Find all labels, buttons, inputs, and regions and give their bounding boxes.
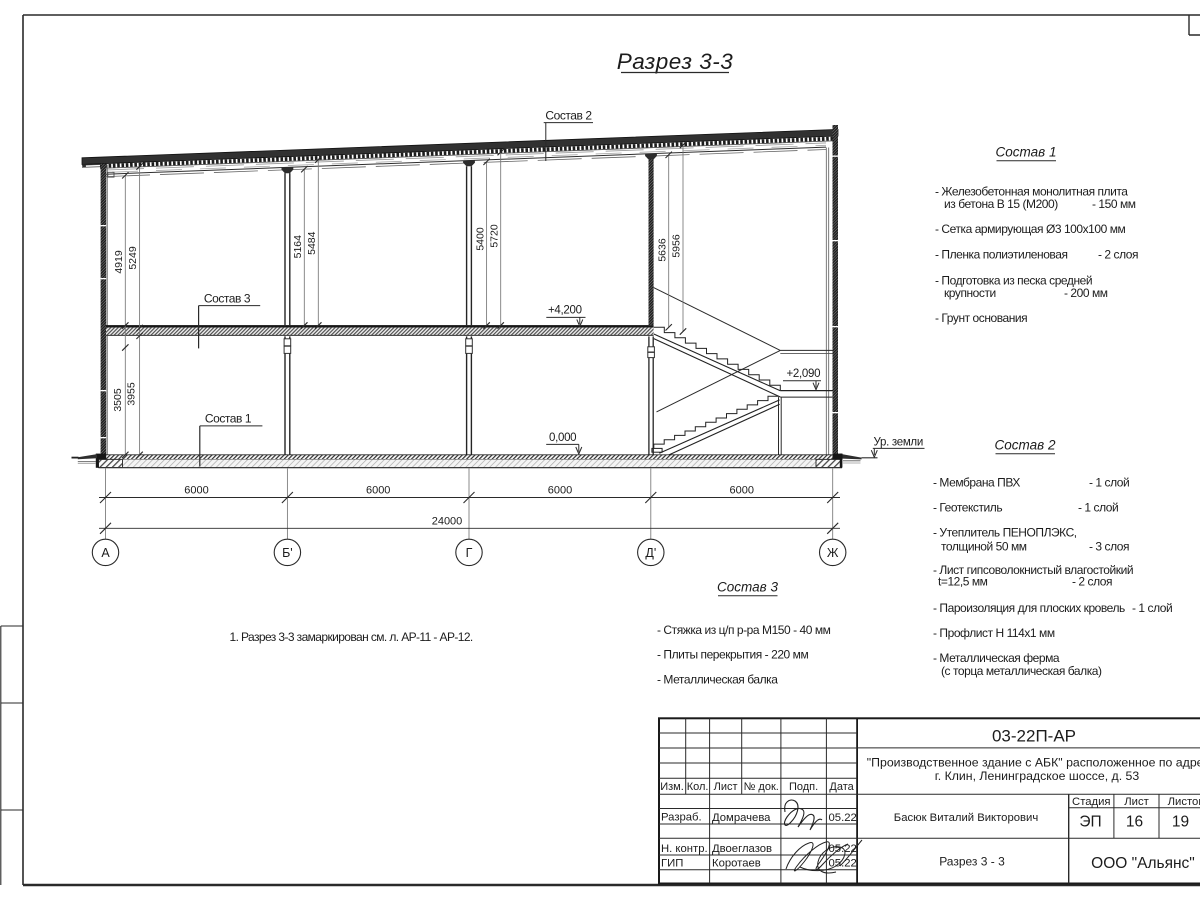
svg-text:5720: 5720: [489, 224, 501, 248]
svg-text:24000: 24000: [432, 515, 463, 527]
svg-text:4919: 4919: [113, 250, 125, 274]
svg-text:5249: 5249: [127, 246, 139, 270]
svg-text:г. Клин, Ленинградское шоссе,: г. Клин, Ленинградское шоссе, д. 53: [935, 769, 1140, 783]
svg-text:Д': Д': [645, 546, 656, 560]
svg-text:3955: 3955: [126, 382, 138, 406]
svg-text:6000: 6000: [548, 485, 572, 497]
svg-text:(с торца металлическая балка): (с торца металлическая балка): [941, 664, 1102, 678]
svg-text:Дата: Дата: [829, 781, 854, 793]
svg-text:Коротаев: Коротаев: [712, 858, 761, 870]
svg-text:- 1 слой: - 1 слой: [1089, 476, 1129, 490]
svg-text:- Утеплитель ПЕНОПЛЭКС,: - Утеплитель ПЕНОПЛЭКС,: [933, 526, 1077, 540]
svg-text:5400: 5400: [475, 227, 487, 251]
svg-text:03-22П-АР: 03-22П-АР: [992, 727, 1076, 746]
svg-text:- Профлист Н 114х1 мм: - Профлист Н 114х1 мм: [933, 626, 1055, 640]
svg-text:- Мембрана ПВХ: - Мембрана ПВХ: [933, 476, 1020, 490]
svg-text:- Плиты перекрытия - 220 мм: - Плиты перекрытия - 220 мм: [657, 648, 808, 662]
svg-text:- 1 слой: - 1 слой: [1078, 501, 1118, 515]
svg-text:Лист: Лист: [714, 781, 738, 793]
svg-text:Состав 3: Состав 3: [717, 580, 778, 595]
svg-text:- 3 слоя: - 3 слоя: [1089, 540, 1129, 554]
svg-text:6000: 6000: [730, 485, 754, 497]
svg-text:Домрачева: Домрачева: [712, 812, 771, 824]
svg-text:- Пароизоляция для плоских кро: - Пароизоляция для плоских кровель: [933, 601, 1125, 615]
svg-text:ООО "Альянс": ООО "Альянс": [1091, 855, 1195, 872]
svg-text:№ док.: № док.: [744, 781, 779, 793]
svg-text:- Пленка полиэтиленовая: - Пленка полиэтиленовая: [935, 248, 1068, 262]
svg-text:6000: 6000: [366, 485, 390, 497]
svg-text:16: 16: [1126, 814, 1143, 831]
svg-text:Н. контр.: Н. контр.: [661, 843, 708, 855]
svg-text:"Производственное здание с АБК: "Производственное здание с АБК" располож…: [867, 756, 1200, 770]
svg-text:- Грунт основания: - Грунт основания: [935, 311, 1027, 325]
svg-text:- Металлическая ферма: - Металлическая ферма: [933, 651, 1060, 665]
svg-text:Подп.: Подп.: [789, 781, 818, 793]
svg-text:Состав 2: Состав 2: [545, 109, 592, 123]
svg-text:- Стяжка из ц/п р-ра М150 - 40: - Стяжка из ц/п р-ра М150 - 40 мм: [657, 623, 831, 637]
svg-text:Басюк Виталий Викторович: Басюк Виталий Викторович: [894, 812, 1039, 824]
svg-text:- 200 мм: - 200 мм: [1064, 286, 1108, 300]
svg-text:+2,090: +2,090: [787, 368, 821, 380]
svg-text:5636: 5636: [657, 238, 669, 262]
svg-text:- Металлическая балка: - Металлическая балка: [657, 673, 778, 687]
svg-text:0,000: 0,000: [549, 432, 576, 444]
svg-text:5164: 5164: [292, 235, 304, 259]
svg-text:ГИП: ГИП: [661, 858, 683, 870]
svg-text:крупности: крупности: [944, 286, 996, 300]
svg-text:Состав 1: Состав 1: [205, 411, 252, 425]
svg-text:Ур. земли: Ур. земли: [874, 436, 923, 448]
svg-text:05.22: 05.22: [829, 843, 857, 855]
svg-text:Состав 3: Состав 3: [204, 291, 251, 305]
svg-text:- 2 слоя: - 2 слоя: [1098, 248, 1138, 262]
svg-text:Разрез 3 - 3: Разрез 3 - 3: [939, 855, 1005, 869]
svg-text:Кол.: Кол.: [687, 781, 709, 793]
svg-text:Состав 2: Состав 2: [995, 438, 1056, 453]
svg-text:Двоеглазов: Двоеглазов: [712, 843, 772, 855]
svg-text:Лист: Лист: [1124, 796, 1149, 808]
svg-text:Разрез 3-3: Разрез 3-3: [617, 49, 734, 74]
svg-text:5484: 5484: [306, 231, 318, 255]
svg-text:Листов: Листов: [1168, 796, 1200, 808]
svg-text:А: А: [101, 546, 110, 560]
svg-text:из бетона В 15 (М200): из бетона В 15 (М200): [944, 197, 1058, 211]
svg-text:- 150 мм: - 150 мм: [1092, 197, 1136, 211]
svg-text:1. Разрез 3-3 замаркирован см.: 1. Разрез 3-3 замаркирован см. л. АР-11 …: [230, 630, 473, 644]
svg-text:Б': Б': [282, 546, 293, 560]
svg-text:ЭП: ЭП: [1079, 814, 1101, 831]
svg-text:3505: 3505: [112, 388, 124, 412]
svg-text:- Сетка армирующая Ø3 100х100: - Сетка армирующая Ø3 100х100 мм: [935, 222, 1126, 236]
svg-text:- 2 слоя: - 2 слоя: [1072, 575, 1112, 589]
svg-text:- 1 слой: - 1 слой: [1132, 601, 1172, 615]
svg-text:6000: 6000: [184, 485, 208, 497]
svg-text:толщиной 50 мм: толщиной 50 мм: [941, 540, 1027, 554]
svg-text:5956: 5956: [671, 234, 683, 258]
svg-text:Состав 1: Состав 1: [996, 145, 1057, 160]
svg-text:19: 19: [1172, 814, 1189, 831]
svg-text:05.22: 05.22: [829, 812, 857, 824]
svg-text:Г: Г: [466, 546, 473, 560]
svg-text:Разраб.: Разраб.: [661, 812, 702, 824]
svg-text:Стадия: Стадия: [1072, 796, 1111, 808]
svg-text:+4,200: +4,200: [548, 305, 582, 317]
svg-text:Изм.: Изм.: [660, 781, 684, 793]
svg-text:- Геотекстиль: - Геотекстиль: [933, 501, 1002, 515]
svg-text:t=12,5 мм: t=12,5 мм: [938, 575, 988, 589]
svg-text:Ж: Ж: [827, 546, 839, 560]
